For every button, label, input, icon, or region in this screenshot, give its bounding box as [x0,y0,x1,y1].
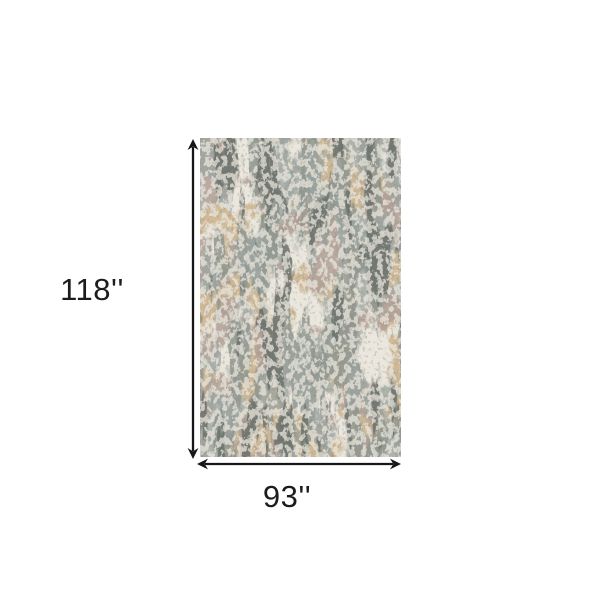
rug-image [200,138,401,457]
product-dimensions-diagram: 118'' 93'' [0,0,600,600]
width-dimension-arrow [196,456,402,472]
width-dimension-label: 93'' [263,479,311,515]
height-dimension-label: 118'' [60,272,124,308]
rug-layer-speckle [200,138,401,457]
rug-texture [200,138,401,457]
height-dimension-arrow [185,138,201,460]
